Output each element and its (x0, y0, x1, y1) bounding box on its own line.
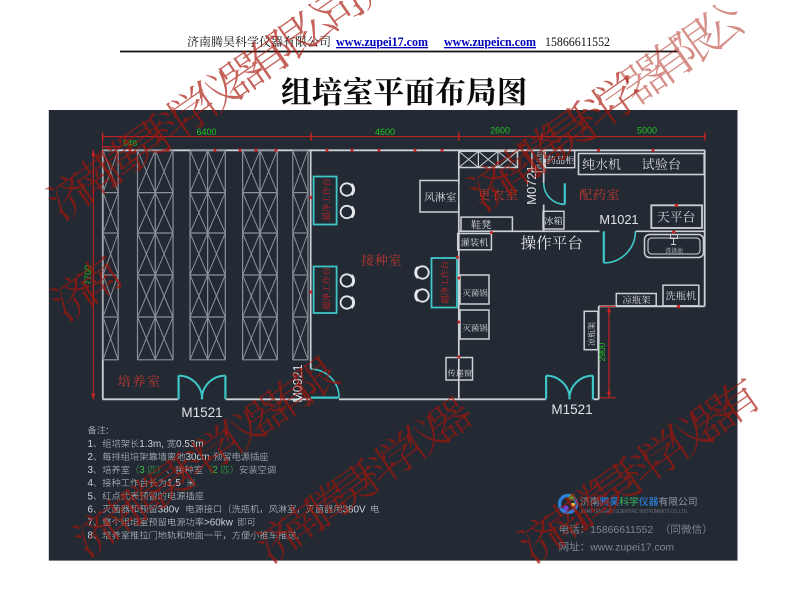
svg-text:M1521: M1521 (181, 405, 222, 420)
svg-text:6400: 6400 (196, 127, 216, 137)
svg-text:3: 3 (139, 465, 145, 476)
svg-text:2900: 2900 (597, 342, 607, 361)
svg-text:1: 1 (88, 439, 94, 450)
svg-text:15866611552: 15866611552 (590, 525, 653, 536)
svg-text:1.3m,: 1.3m, (139, 439, 164, 450)
svg-text:4: 4 (88, 478, 94, 489)
svg-text:www.zupei17.com: www.zupei17.com (336, 34, 428, 49)
svg-text:M1521: M1521 (551, 402, 592, 417)
svg-text:3: 3 (88, 465, 94, 476)
svg-text:8: 8 (88, 531, 94, 542)
svg-text:380v: 380v (158, 504, 179, 515)
svg-text:4600: 4600 (375, 127, 395, 137)
svg-text:15866611552: 15866611552 (545, 34, 610, 49)
svg-text:5: 5 (88, 491, 94, 502)
svg-text:2: 2 (88, 452, 94, 463)
svg-text:6: 6 (88, 504, 94, 515)
svg-text:0.53m: 0.53m (176, 439, 203, 450)
svg-text:www.zupeicn.com: www.zupeicn.com (444, 34, 536, 49)
svg-text:www.zupei17.com: www.zupei17.com (589, 543, 674, 554)
svg-text::: : (106, 426, 109, 437)
svg-text:5000: 5000 (637, 126, 657, 136)
svg-text:2600: 2600 (490, 126, 510, 136)
svg-text:M1021: M1021 (599, 212, 638, 227)
svg-text:>60kw: >60kw (204, 518, 234, 529)
svg-text:2: 2 (212, 465, 218, 476)
